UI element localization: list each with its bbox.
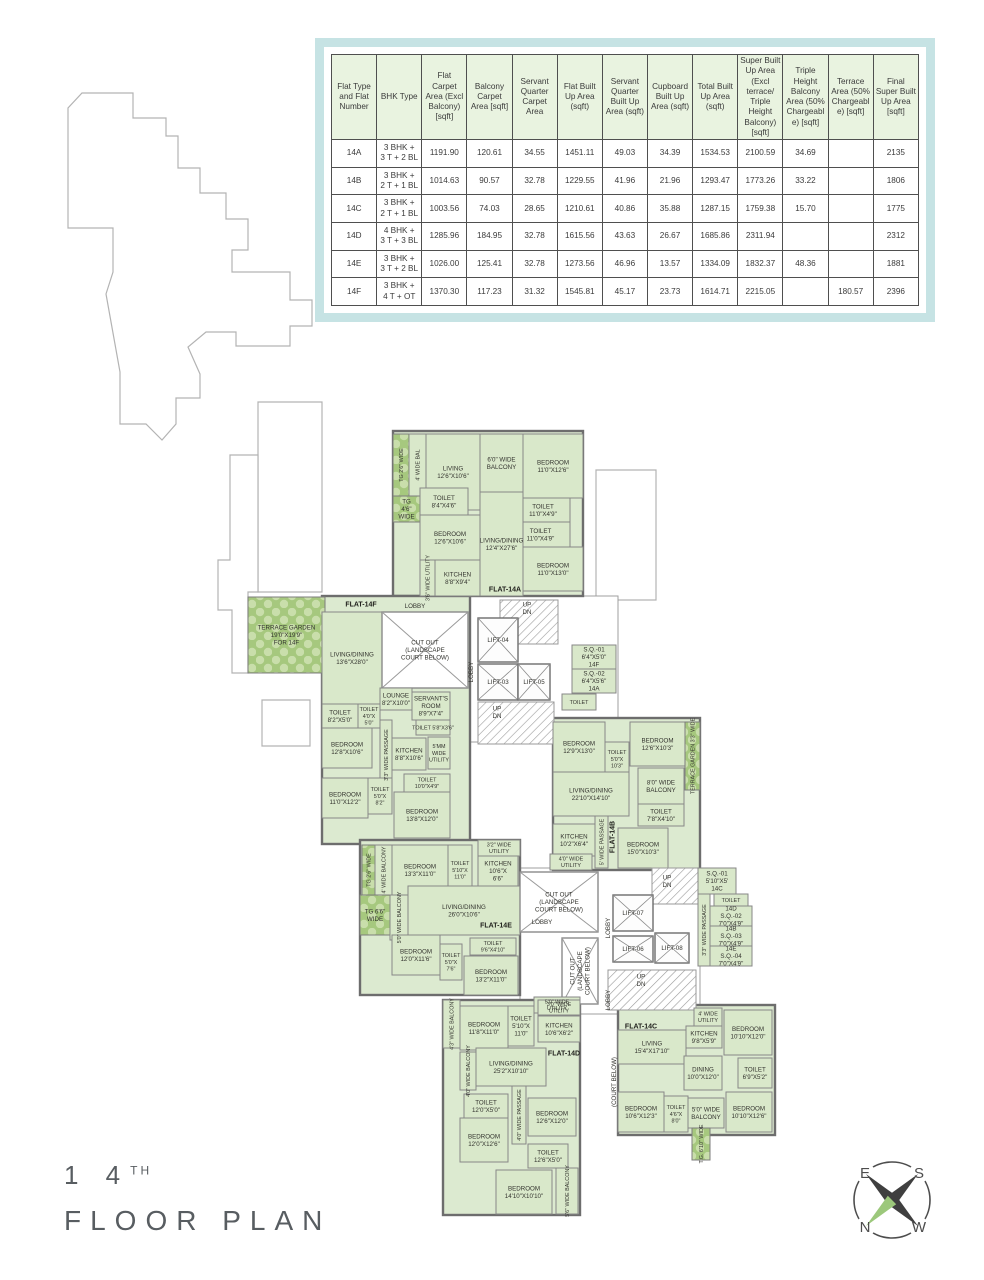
plan-label: LIVING/DINING22'10"X14'10" bbox=[569, 787, 613, 802]
plan-label: BEDROOM12'0"X12'6" bbox=[468, 1133, 500, 1148]
plan-label: BEDROOM14'10"X10'10" bbox=[505, 1185, 543, 1200]
plan-label: T.G. 6'10" WIDE bbox=[699, 1124, 705, 1163]
plan-label: BEDROOM10'10"X12'6" bbox=[732, 1105, 767, 1120]
plan-label: FLAT-14F bbox=[345, 601, 377, 608]
floor-plan-page: { "title": {"line1": "1 4", "sup": "TH",… bbox=[0, 0, 984, 1280]
plan-label: LOBBY bbox=[468, 662, 475, 683]
plan-label: BEDROOM15'0"X10'3" bbox=[627, 841, 659, 856]
page-title: 1 4TH FLOOR PLAN bbox=[64, 1160, 331, 1237]
plan-label: TOILET7'8"X4'10" bbox=[647, 808, 675, 823]
stair-block bbox=[652, 868, 700, 904]
plan-label: BEDROOM11'8"X11'0" bbox=[468, 1021, 500, 1036]
plan-label: BEDROOM11'0"X12'2" bbox=[329, 791, 361, 806]
plan-label: TG 6'6"WIDE bbox=[365, 908, 386, 923]
compass-icon: E S N W bbox=[830, 1138, 954, 1262]
plan-label: TOILET11'0"X4'9" bbox=[529, 503, 557, 517]
plan-label: LIFT-06 bbox=[622, 946, 644, 953]
plan-label: FLAT-14A bbox=[489, 586, 521, 593]
plan-label: TOILET12'6"X5'0" bbox=[534, 1149, 562, 1164]
plan-label: BEDROOM12'0"X11'6" bbox=[400, 948, 432, 963]
plan-label: BEDROOM13'8"X12'0" bbox=[406, 808, 438, 823]
plan-label: (COURT BELOW) bbox=[611, 1057, 618, 1107]
floor-plan-label: FLOOR PLAN bbox=[64, 1205, 331, 1237]
compass-label-n: N bbox=[860, 1219, 871, 1236]
plan-label: TOILET12'0"X5'0" bbox=[472, 1099, 500, 1114]
plan-label: BEDROOM12'6"X12'0" bbox=[536, 1110, 568, 1125]
plan-label: BEDROOM12'6"X10'3" bbox=[642, 737, 674, 752]
plan-label: 3'3" WIDE PASSAGE bbox=[702, 904, 708, 956]
plan-label: 5'0" WIDEBALCONY bbox=[691, 1106, 721, 1121]
plan-label: TOILET11'0"X4'9" bbox=[527, 528, 555, 543]
plan-label: BEDROOM13'3"X11'0" bbox=[404, 863, 436, 878]
compass-label-e: E bbox=[860, 1165, 870, 1182]
plan-label: 6'0" WIDEBALCONY bbox=[487, 456, 517, 471]
plan-label: LIFT-05 bbox=[523, 679, 545, 686]
plan-label: 3'3" WIDE PASSAGE bbox=[384, 729, 390, 781]
plan-label: TG 2'6" WIDE bbox=[366, 853, 372, 887]
plan-label: 8'0" WIDEBALCONY bbox=[646, 779, 676, 794]
plan-label: FLAT-14B bbox=[609, 821, 616, 853]
plan-label: UPDN bbox=[523, 601, 532, 616]
compass-label-w: W bbox=[912, 1219, 927, 1236]
plan-label: LOBBY bbox=[405, 603, 426, 610]
plan-label: KITCHEN10'2"X6'4" bbox=[560, 833, 588, 848]
plan-label: FLAT-14D bbox=[548, 1050, 580, 1057]
plan-label: BEDROOM10'6"X12'3" bbox=[625, 1105, 657, 1120]
plan-label: LIVING/DINING12'4"X27'6" bbox=[480, 537, 524, 552]
plan-label: TOILET bbox=[722, 898, 741, 904]
plan-label: 4'0" WIDEUTILITY bbox=[559, 857, 584, 870]
floor-number: 1 4TH bbox=[64, 1160, 331, 1191]
plan-label: TOILET 5'8"X3'6" bbox=[412, 725, 454, 731]
plan-label: 4' WIDE BAL bbox=[415, 449, 421, 480]
stair-block bbox=[608, 970, 696, 1010]
plan-label: 4'0" WIDE PASSAGE bbox=[517, 1089, 523, 1141]
plan-label: BEDROOM13'2"X11'0" bbox=[475, 969, 507, 984]
plan-label: 4'3" WIDE BALCONY bbox=[449, 998, 455, 1050]
plan-label: TOILET6'9"X5'2" bbox=[743, 1066, 768, 1081]
plan-label: LIFT-07 bbox=[622, 910, 644, 917]
plan-label: KITCHEN10'6"X6'2" bbox=[545, 1022, 573, 1037]
plan-label: LOUNGE8'2"X10'0" bbox=[382, 692, 410, 707]
plan-label: 3'0" WIDEUTILITY bbox=[547, 1002, 572, 1015]
floor-ordinal-suffix: TH bbox=[130, 1163, 152, 1177]
plan-label: KITCHEN8'8"X9'4" bbox=[444, 571, 471, 586]
plan-label: LOBBY bbox=[605, 918, 612, 939]
plan-label: BEDROOM11'0"X12'6" bbox=[537, 459, 569, 474]
plan-label: LOBBY bbox=[605, 990, 612, 1011]
plan-label: BEDROOM11'0"X13'0" bbox=[537, 562, 569, 577]
plan-label: TOILET9'6"X4'10" bbox=[481, 941, 506, 954]
plan-label: 5'6" WIDE BALCONY bbox=[565, 1165, 571, 1217]
plan-label: BEDROOM12'9"X13'0" bbox=[563, 740, 595, 755]
plan-label: LIFT-03 bbox=[487, 679, 509, 686]
plan-label: TG 2'6" WIDE bbox=[399, 448, 405, 482]
outline-shape bbox=[596, 470, 656, 600]
compass-label-s: S bbox=[914, 1165, 924, 1182]
plan-label: LIFT-08 bbox=[661, 945, 683, 952]
plan-label: LIVING/DINING26'0"X10'6" bbox=[442, 904, 486, 919]
plan-label: TOILET8'4"X4'6" bbox=[432, 495, 457, 510]
plan-label: LIVING/DINING13'6"X28'0" bbox=[330, 651, 374, 666]
plan-label: UPDN bbox=[493, 705, 502, 720]
plan-label: 5'0" WIDE BALCONY bbox=[397, 891, 403, 943]
floor-plan-drawing: TG 2'6" WIDE4' WIDE BALLIVING12'6"X10'6"… bbox=[0, 0, 984, 1280]
outline-shape bbox=[258, 402, 322, 592]
plan-label: KITCHEN9'8"X5'9" bbox=[690, 1030, 717, 1045]
plan-label: BEDROOM10'10"X12'0" bbox=[731, 1026, 766, 1041]
plan-label: UPDN bbox=[663, 874, 672, 889]
plan-label: FLAT-14E bbox=[480, 922, 512, 929]
plan-label: BEDROOM12'8"X10'6" bbox=[331, 741, 363, 756]
outline-shape bbox=[68, 93, 312, 440]
plan-label: FLAT-14C bbox=[625, 1023, 657, 1030]
outline-shape bbox=[262, 700, 310, 746]
plan-label: 3'6" WIDE UTILITY bbox=[425, 555, 431, 601]
plan-label: TOILET bbox=[570, 700, 589, 706]
plan-label: BEDROOM12'6"X10'6" bbox=[434, 531, 466, 546]
plan-label: LIFT-04 bbox=[487, 637, 509, 644]
plan-label: TOILET10'0"X4'9" bbox=[415, 778, 440, 791]
plan-label: TOILET8'2"X5'0" bbox=[328, 709, 353, 724]
plan-label: 5' WIDE PASSAGE bbox=[599, 818, 605, 865]
plan-label: LOBBY bbox=[532, 919, 553, 926]
plan-label: LIVING/DINING25'2"X10'10" bbox=[489, 1060, 533, 1075]
stair-block bbox=[478, 702, 554, 744]
plan-label: 4' WIDEUTILITY bbox=[698, 1012, 718, 1025]
plan-label: 4'0" WIDE BALCONY bbox=[466, 1045, 472, 1097]
plan-label: 3'2" WIDEUTILITY bbox=[487, 843, 512, 856]
compass-blade-n bbox=[866, 1196, 896, 1226]
plan-label: UPDN bbox=[637, 973, 646, 988]
plan-label: 4' WIDE BALCONY bbox=[381, 846, 387, 893]
plan-label: KITCHEN8'8"X10'6" bbox=[395, 747, 423, 762]
plan-label: TERRACE GARDEN 3'3" WIDE bbox=[690, 717, 696, 794]
